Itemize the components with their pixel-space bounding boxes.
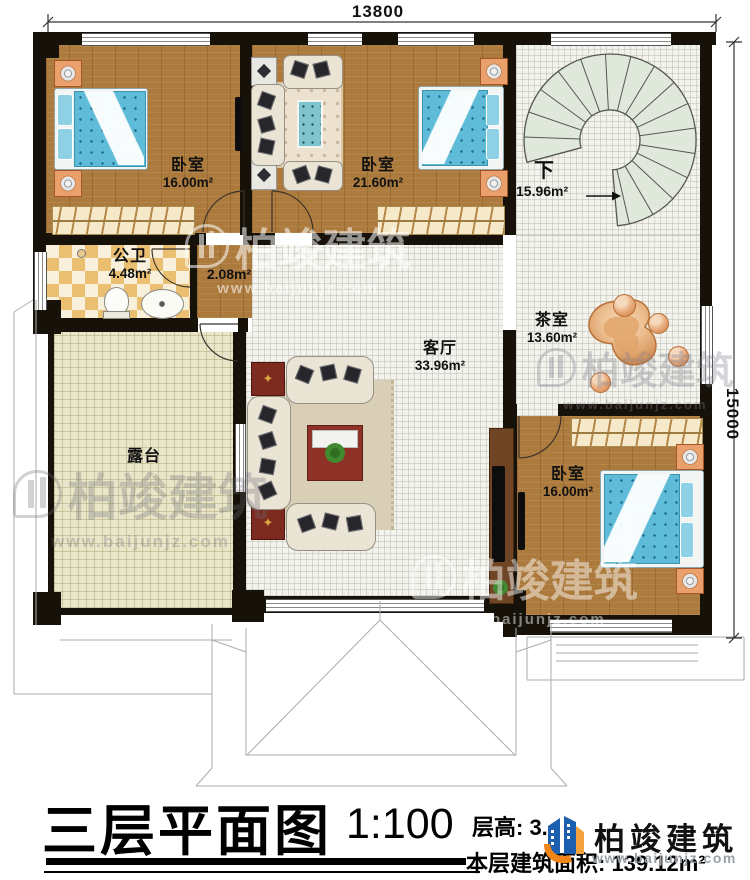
door-bedroom2: [272, 191, 313, 232]
label-stairs: 下 15.96m²: [516, 160, 592, 199]
title-rule-thick: [46, 858, 466, 865]
brand-url: www.baijunjz.com: [592, 850, 737, 866]
label-bedroom2: 卧室 21.60m²: [338, 157, 418, 191]
linework-overlay: [0, 0, 750, 880]
label-corridor: 2.08m²: [198, 266, 260, 282]
dimension-lines: [43, 14, 742, 643]
roof-outlines: [14, 300, 744, 786]
label-tearoom: 茶室 13.60m²: [510, 312, 594, 346]
label-bedroom3: 卧室 16.00m²: [526, 466, 610, 500]
brand-logo-icon: [538, 810, 592, 868]
dimension-width: 13800: [330, 2, 426, 22]
label-bedroom1: 卧室 16.00m²: [148, 157, 228, 191]
title-rule-thin: [44, 871, 480, 873]
door-arcs: [152, 191, 561, 458]
door-bedroom1: [203, 191, 244, 232]
floor-height-text: 层高: 3.: [472, 810, 548, 842]
label-terrace: 露台: [112, 448, 176, 466]
label-living: 客厅 33.96m²: [398, 340, 482, 374]
drawing-title: 三层平面图: [42, 786, 332, 866]
door-bedroom3: [519, 416, 561, 458]
label-bathroom: 公卫 4.48m²: [96, 248, 164, 282]
drawing-scale: 1:100: [346, 800, 454, 849]
dimension-height: 15000: [722, 377, 742, 451]
door-terrace: [200, 324, 238, 361]
floor-plan-page: ✦ ✦: [0, 0, 750, 880]
